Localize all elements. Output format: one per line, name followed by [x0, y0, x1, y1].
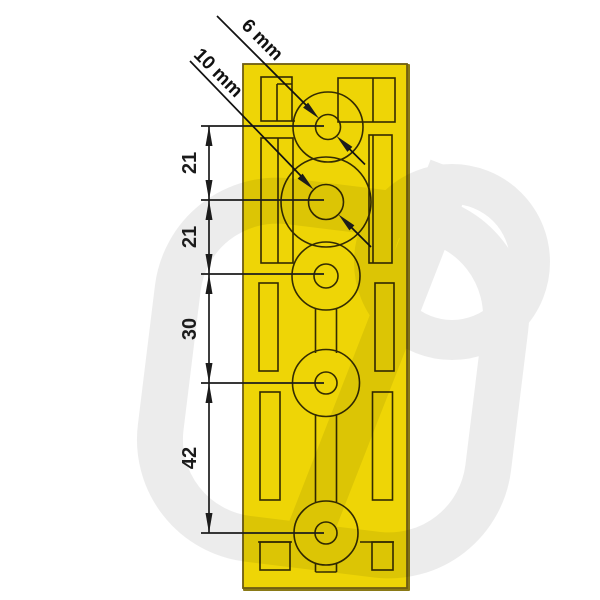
dim-label-21-second: 21	[179, 226, 201, 248]
technical-drawing: 21 21 30 42 6 mm 10 mm	[0, 0, 600, 600]
arrow-down-icon	[206, 363, 213, 383]
label-6mm: 6 mm	[237, 15, 287, 65]
dim-label-21-top: 21	[179, 152, 201, 174]
arrow-up-icon	[206, 126, 213, 146]
drawing-canvas: 21 21 30 42 6 mm 10 mm	[0, 0, 600, 600]
arrow-up-icon	[206, 383, 213, 403]
label-10mm: 10 mm	[189, 44, 246, 101]
dim-label-30: 30	[179, 318, 201, 340]
dim-label-42: 42	[179, 447, 201, 469]
arrow-up-icon	[206, 274, 213, 294]
